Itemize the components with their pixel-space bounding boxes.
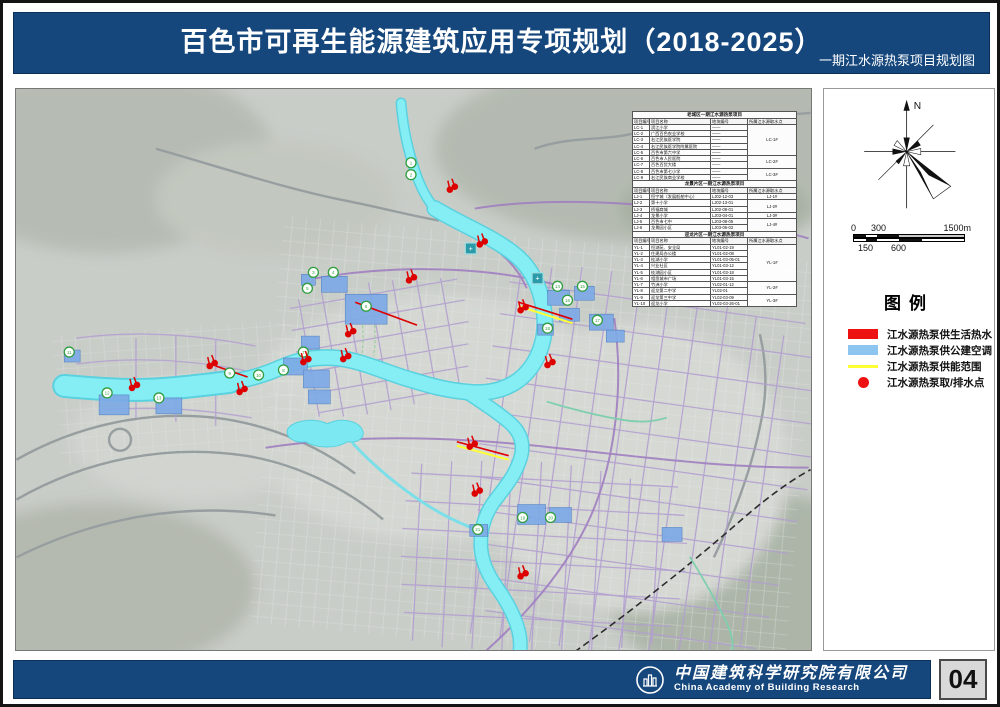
project-badge: 18 (543, 323, 553, 333)
legend-item-label: 江水源热泵供生活热水 (887, 327, 992, 342)
plan-sheet: { "header": { "title": "百色市可再生能源建筑应用专项规划… (0, 0, 1000, 707)
project-badge: 5 (302, 283, 312, 293)
table-section-title: 迎龙片区一期江水源热泵项目 (633, 231, 797, 238)
project-badge: 11 (64, 347, 74, 357)
project-badge: 6 (361, 301, 371, 311)
svg-text:14: 14 (555, 284, 560, 289)
table-row: LC-1滨江小学——LC-1# (633, 124, 797, 130)
company-names: 中国建筑科学研究院有限公司 China Academy of Building … (674, 666, 908, 693)
sidebar-panel: N 0 300 1500m (823, 88, 995, 651)
table-row: LJ-4龙景小学LJ03-04-01LJ-3# (633, 212, 797, 218)
svg-text:21: 21 (475, 527, 480, 532)
legend-items: 江水源热泵供生活热水 江水源热泵供公建空调 江水源热泵供能范围 江水源热泵取/排… (824, 326, 994, 390)
scale-label: 150 (858, 243, 873, 253)
table-cell: LC-2# (748, 156, 797, 169)
project-badge: 12 (102, 388, 112, 398)
project-badge: 14 (553, 281, 563, 291)
map-teal-icon: + (465, 243, 476, 254)
project-badge: 17 (592, 315, 602, 325)
table-cell: YL-2# (748, 282, 797, 295)
scale-label: 0 (851, 223, 856, 233)
table-row: YL-9迎龙第三中学YL02-03-09YL-3# (633, 294, 797, 300)
company-name-cn: 中国建筑科学研究院有限公司 (674, 666, 908, 683)
footer-banner: 中国建筑科学研究院有限公司 China Academy of Building … (13, 660, 931, 699)
table-col-header: 项目编号 (633, 187, 650, 193)
page-number: 04 (939, 659, 987, 700)
compass-rose: N (844, 95, 974, 213)
table-col-header: 项目编号 (633, 118, 650, 124)
project-table: 老城区一期江水源热泵项目项目编号项目名称地块编号所属江水源取水点LC-1滨江小学… (632, 111, 797, 307)
svg-text:11: 11 (67, 350, 72, 355)
compass-n-label: N (914, 101, 921, 112)
table-row: LC-8百色市第七小学——LC-3# (633, 168, 797, 174)
project-badge: 16 (562, 295, 572, 305)
svg-text:+: + (469, 246, 473, 253)
project-badge: 9 (225, 368, 235, 378)
table-cell: 迎龙小学 (650, 300, 711, 306)
legend-title: 图例 (824, 289, 994, 314)
project-badge: 20 (546, 512, 556, 522)
svg-text:+: + (536, 276, 540, 283)
table-row: LJ-2第十小学LJ02-13-01LJ-2# (633, 200, 797, 206)
compass-star (892, 137, 950, 198)
company-logo-icon (635, 665, 665, 695)
project-badge: 13 (154, 393, 164, 403)
map-teal-icon: + (532, 273, 543, 284)
legend-item: 江水源热泵供能范围 (824, 358, 994, 374)
project-badge: 19 (518, 512, 528, 522)
table-section-title: 老城区一期江水源热泵项目 (633, 112, 797, 119)
table-section-title: 龙景片区一期江水源热泵项目 (633, 181, 797, 188)
project-badge: 3 (308, 267, 318, 277)
svg-text:16: 16 (565, 298, 570, 303)
legend: 图例 江水源热泵供生活热水 江水源热泵供公建空调 江水源热泵供能范围 江水源热泵… (824, 289, 994, 390)
table-row: YL-1恒湖苑、安全局YL01-02-19YL-1# (633, 244, 797, 250)
project-badge: 8 (278, 365, 288, 375)
legend-item: 江水源热泵供生活热水 (824, 326, 994, 342)
table-row: LJ-5百色市七中LJ03-08-05LJ-4# (633, 219, 797, 225)
page-subtitle: 一期江水源热泵项目规划图 (819, 50, 975, 69)
scale-label: 1500m (943, 223, 971, 233)
scale-label: 300 (871, 223, 886, 233)
legend-item-label: 江水源热泵供公建空调 (887, 343, 992, 358)
table-col-header: 项目编号 (633, 238, 650, 244)
legend-item: 江水源热泵取/排水点 (824, 374, 994, 390)
table-row: LJ-1恒宁城（发展船舶中心）LJ02-12-03LJ-1# (633, 194, 797, 200)
map-panel: + + 1 2 3 4 5 6 7 8 9 10 11 12 13 (15, 88, 812, 651)
legend-item: 江水源热泵供公建空调 (824, 342, 994, 358)
legend-swatch-dot (848, 377, 878, 388)
legend-item-label: 江水源热泵取/排水点 (887, 375, 984, 390)
svg-text:17: 17 (595, 318, 600, 323)
project-badge: 10 (254, 370, 264, 380)
table-cell: LJ-2# (748, 200, 797, 213)
table-cell: LC-1# (748, 124, 797, 155)
svg-text:18: 18 (545, 326, 550, 331)
table-cell: YL-3# (748, 294, 797, 307)
project-badge: 15 (577, 281, 587, 291)
svg-text:20: 20 (548, 515, 553, 520)
svg-text:10: 10 (256, 373, 261, 378)
scale-label: 600 (891, 243, 906, 253)
project-badge: 21 (473, 524, 483, 534)
project-badge: 2 (406, 170, 416, 180)
table-cell: YL-10 (633, 300, 650, 306)
table-cell: YL02-03-26-01 (711, 300, 748, 306)
legend-swatch-line (848, 365, 878, 368)
svg-text:15: 15 (580, 284, 585, 289)
project-badge: 1 (406, 158, 416, 168)
svg-text:12: 12 (105, 391, 110, 396)
table-cell: LJ-4# (748, 219, 797, 232)
table-row: LC-6百色市人民医院——LC-2# (633, 156, 797, 162)
table-cell: LC-3# (748, 168, 797, 181)
scale-bar: 0 300 1500m 150 600 (853, 223, 965, 253)
legend-item-label: 江水源热泵供能范围 (887, 359, 982, 374)
header-banner: 百色市可再生能源建筑应用专项规划（2018-2025） 一期江水源热泵项目规划图 (13, 12, 990, 74)
legend-swatch-rect (848, 345, 878, 355)
table-row: YL-7竹洲小学YL02-01-12YL-2# (633, 282, 797, 288)
svg-text:19: 19 (520, 515, 525, 520)
legend-swatch-rect (848, 329, 878, 339)
project-badge: 4 (328, 267, 338, 277)
table-cell: YL-1# (748, 244, 797, 282)
company-name-en: China Academy of Building Research (674, 683, 908, 693)
svg-text:13: 13 (156, 396, 161, 401)
